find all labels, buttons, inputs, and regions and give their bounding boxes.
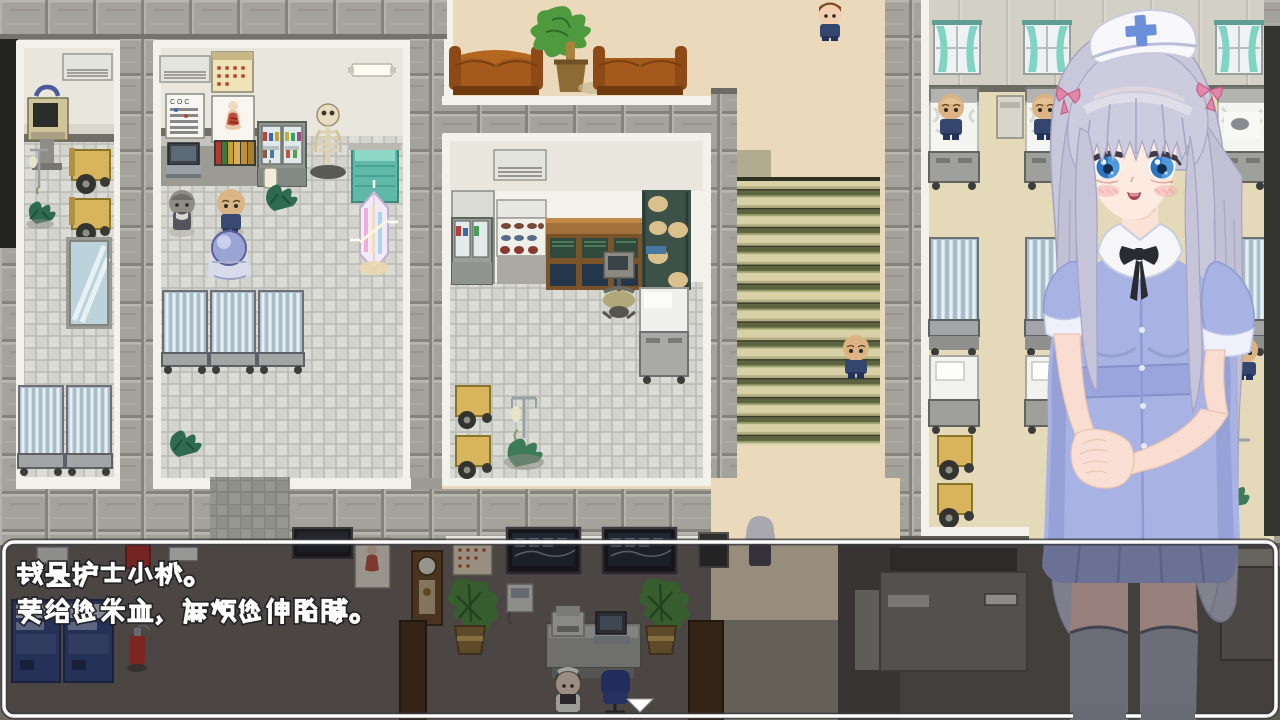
svg-text:C O C: C O C (170, 99, 189, 106)
